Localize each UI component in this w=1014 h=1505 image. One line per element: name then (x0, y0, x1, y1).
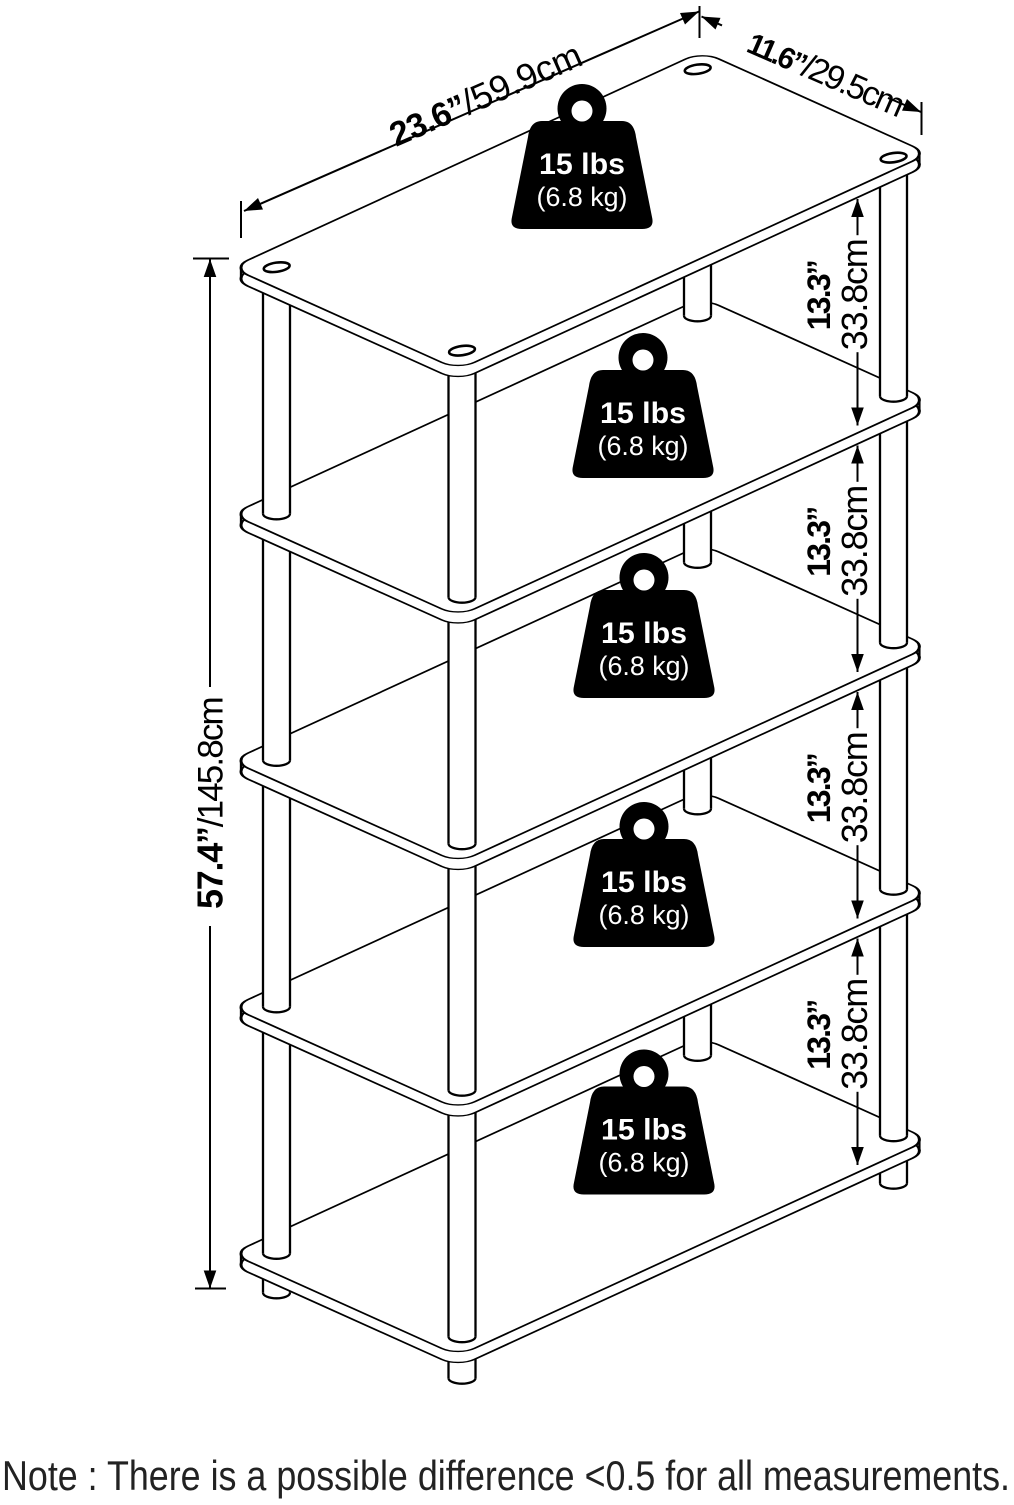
svg-text:33.8cm: 33.8cm (834, 485, 875, 597)
svg-text:33.8cm: 33.8cm (834, 978, 875, 1090)
svg-text:(6.8 kg): (6.8 kg) (599, 651, 690, 681)
svg-text:(6.8 kg): (6.8 kg) (598, 431, 689, 461)
svg-text:15 lbs: 15 lbs (539, 148, 625, 181)
svg-text:33.8cm: 33.8cm (834, 731, 875, 843)
svg-text:(6.8 kg): (6.8 kg) (599, 1148, 690, 1178)
svg-text:13.3”: 13.3” (801, 752, 837, 823)
svg-text:15 lbs: 15 lbs (601, 866, 687, 899)
svg-text:(6.8 kg): (6.8 kg) (599, 900, 690, 930)
svg-text:(6.8 kg): (6.8 kg) (537, 182, 628, 212)
svg-text:13.3”: 13.3” (801, 259, 837, 330)
svg-text:13.3”: 13.3” (801, 999, 837, 1070)
svg-text:15 lbs: 15 lbs (601, 1114, 687, 1147)
svg-text:15 lbs: 15 lbs (601, 617, 687, 650)
svg-text:Note : There is a possible dif: Note : There is a possible difference <0… (2, 1452, 1010, 1499)
svg-text:57.4”/145.8cm: 57.4”/145.8cm (190, 696, 231, 909)
svg-text:15 lbs: 15 lbs (600, 397, 686, 430)
svg-text:13.3”: 13.3” (801, 506, 837, 577)
svg-text:33.8cm: 33.8cm (834, 238, 875, 350)
